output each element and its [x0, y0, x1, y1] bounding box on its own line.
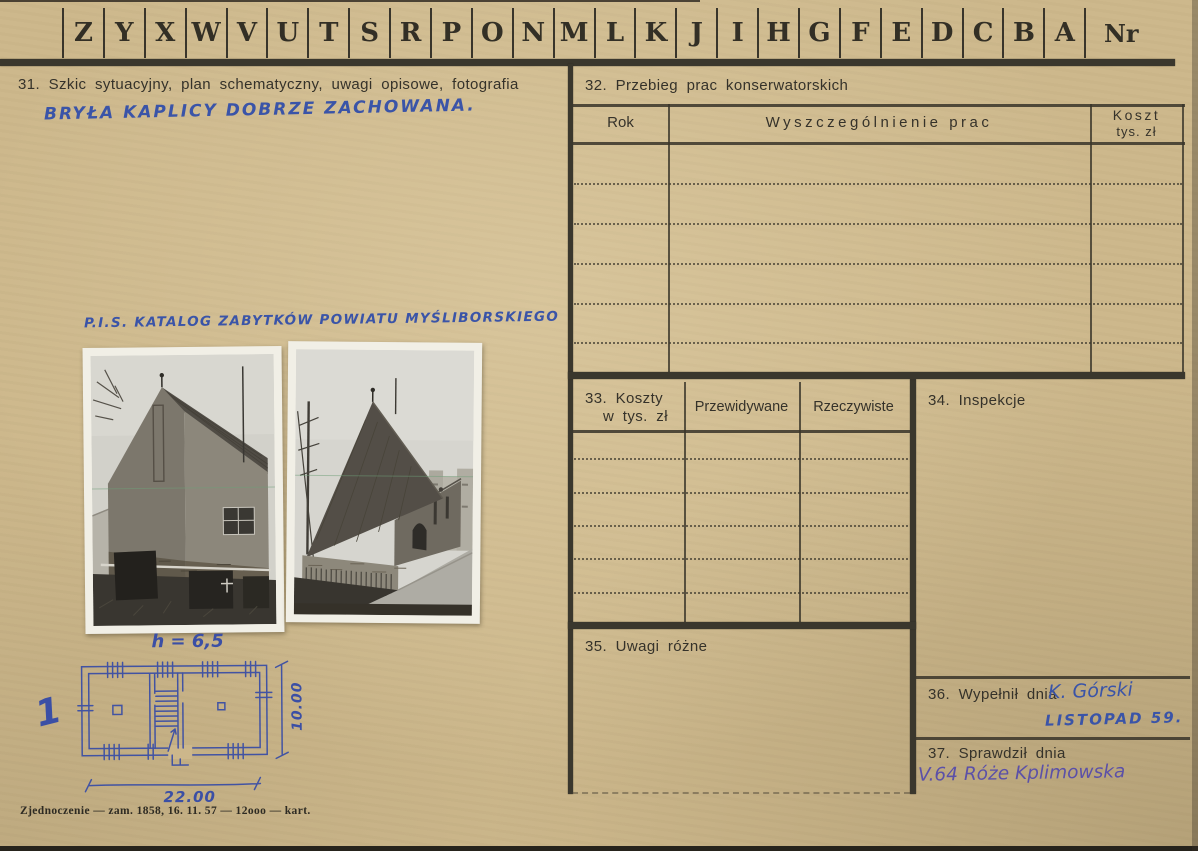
index-letter: J [675, 8, 716, 58]
section32-title: 32. Przebieg prac konserwatorskich [585, 77, 848, 94]
table32-row-line [574, 183, 1182, 185]
index-letter: H [757, 8, 798, 58]
section32-col-rok: Rok [573, 114, 668, 131]
index-letter: R [389, 8, 430, 58]
table33-row-line [574, 558, 908, 560]
scan-edge-bottom [0, 846, 1198, 851]
sketch-depth-label: 10.00 [289, 682, 305, 731]
table32-row-line [574, 223, 1182, 225]
index-letter: B [1002, 8, 1043, 58]
section36-handwritten-name: K. Górski [1048, 679, 1134, 704]
index-letter: S [348, 8, 389, 58]
section33-title-line1: 33. Koszty [585, 390, 663, 407]
table33-bottom-bar [568, 622, 916, 629]
index-letter: Y [103, 8, 144, 58]
section33-title-line2: w tys. zł [603, 408, 668, 425]
index-letter: D [921, 8, 962, 58]
section33-col-przewidywane: Przewidywane [684, 399, 799, 415]
index-nr-label: Nr [1084, 8, 1156, 58]
section36-title: 36. Wypełnił dnia [928, 686, 1057, 703]
index-letter: V [226, 8, 267, 58]
section32-col-koszt-line1: Koszt [1090, 107, 1183, 123]
section31-handwritten-catalog: P.I.S. KATALOG ZABYTKÓW POWIATU MYŚLIBOR… [84, 309, 559, 332]
table32-row-line [574, 342, 1182, 344]
index-letter: G [798, 8, 839, 58]
right-box-divider-vertical [910, 379, 916, 794]
table33-row-line [574, 592, 908, 594]
index-letter: I [716, 8, 757, 58]
index-letter: A [1043, 8, 1084, 58]
table32-bottom-bar [568, 372, 1185, 379]
table32-row-line [574, 263, 1182, 265]
section35-title: 35. Uwagi różne [585, 638, 707, 655]
sketch-width-label: 22.00 [163, 788, 216, 806]
index-letter: K [634, 8, 675, 58]
section32-col-prace: Wyszczególnienie prac [668, 114, 1090, 131]
section35-bottom-line [572, 792, 910, 794]
index-letter: O [471, 8, 512, 58]
sketch-height-label: h = 6,5 [151, 631, 223, 653]
floor-plan-sketch: h = 6,5 22.00 10.00 [59, 632, 310, 819]
index-letter: X [144, 8, 185, 58]
section37-title: 37. Sprawdził dnia [928, 745, 1066, 762]
index-letter: F [839, 8, 880, 58]
section33-col-rzeczywiste: Rzeczywiste [799, 399, 908, 415]
photo-right [286, 341, 482, 624]
strip-divider-bar [0, 59, 1175, 66]
section37-handwritten-entry: V.64 Róże Kplimowska [918, 761, 1126, 786]
index-strip: Z Y X W V U T S R P O N M L K J I H G F … [62, 8, 1156, 58]
index-letter: L [594, 8, 635, 58]
section31-handwritten-note: BRYŁA KAPLICY DOBRZE ZACHOWANA. [44, 95, 476, 124]
index-letter: C [962, 8, 1003, 58]
table33-row-line [574, 458, 908, 460]
section34-title: 34. Inspekcje [928, 392, 1026, 409]
section31-title: 31. Szkic sytuacyjny, plan schematyczny,… [18, 76, 519, 93]
table33-row-line [574, 492, 908, 494]
index-letter: W [185, 8, 226, 58]
index-letter: T [307, 8, 348, 58]
photo-right-image [294, 349, 474, 616]
index-letter: E [880, 8, 921, 58]
index-letter: N [512, 8, 553, 58]
print-imprint: Zjednoczenie — zam. 1858, 16. 11. 57 — 1… [20, 805, 311, 817]
table32-row-line [574, 303, 1182, 305]
right-box-left-border [568, 64, 573, 794]
index-letter: M [553, 8, 594, 58]
index-letter: P [430, 8, 471, 58]
section37-top-line [916, 737, 1190, 740]
section32-col-koszt-line2: tys. zł [1090, 124, 1183, 139]
index-letter: Z [62, 8, 103, 58]
index-letter: U [266, 8, 307, 58]
scan-edge-top [0, 0, 700, 2]
photo-left-image [91, 354, 277, 626]
table33-row-line [574, 525, 908, 527]
section36-handwritten-date: LISTOPAD 59. [1045, 708, 1184, 730]
photo-left [83, 346, 285, 634]
catalog-card: Z Y X W V U T S R P O N M L K J I H G F … [0, 0, 1198, 851]
section36-top-line [916, 676, 1190, 679]
scan-edge-right [1192, 0, 1198, 851]
